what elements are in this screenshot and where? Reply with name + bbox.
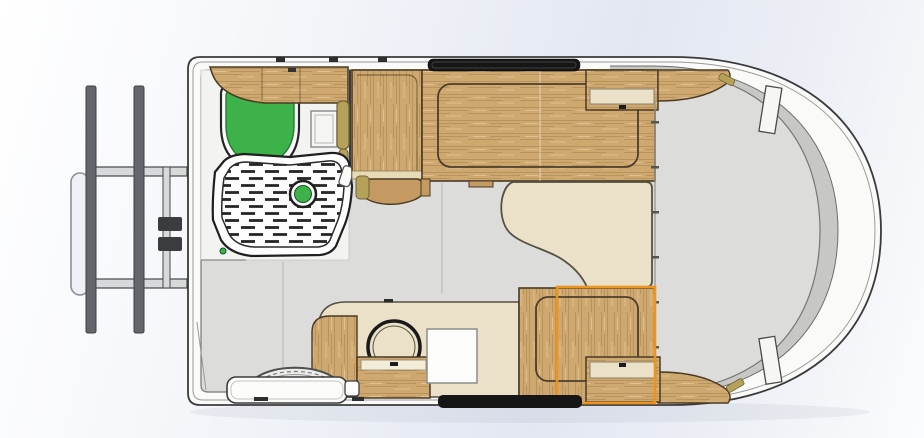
wardrobe[interactable]	[352, 70, 422, 179]
hitch-rail-right	[134, 86, 144, 333]
stove[interactable]	[427, 329, 477, 383]
bed-corner-post	[421, 179, 430, 196]
hitch-rail-left	[86, 86, 96, 333]
sink-cabinet-latch	[390, 362, 398, 366]
floor-fitting-dot	[220, 248, 226, 254]
counter-latch	[384, 299, 393, 303]
entry-step[interactable]	[227, 377, 359, 403]
shower-drain[interactable]	[295, 186, 312, 203]
entry-step-tab	[345, 381, 359, 396]
hitch-clamp-upper	[158, 217, 182, 231]
bed-tab	[469, 181, 493, 187]
drawer-latch	[619, 363, 626, 367]
tow-hitch-frame[interactable]	[71, 86, 187, 333]
shower-duckboard	[222, 161, 344, 247]
locker-front-panel	[590, 89, 654, 104]
dinette-seat[interactable]	[519, 287, 660, 403]
overhead-locker-rear[interactable]	[586, 70, 658, 110]
wardrobe-khaki-fitting	[356, 176, 369, 199]
entry-door[interactable]	[438, 395, 582, 408]
locker-latch	[619, 105, 626, 109]
hitch-clamp-lower	[158, 237, 182, 251]
cabinet-latch	[288, 68, 296, 72]
sink-cabinet[interactable]	[357, 357, 430, 398]
cad-viewport	[0, 0, 924, 438]
shower-tray[interactable]	[213, 153, 352, 256]
seat-drawer[interactable]	[586, 357, 660, 402]
floorplan-svg	[0, 0, 924, 438]
vanity-mirror[interactable]	[311, 111, 337, 147]
front-window[interactable]	[428, 59, 580, 71]
